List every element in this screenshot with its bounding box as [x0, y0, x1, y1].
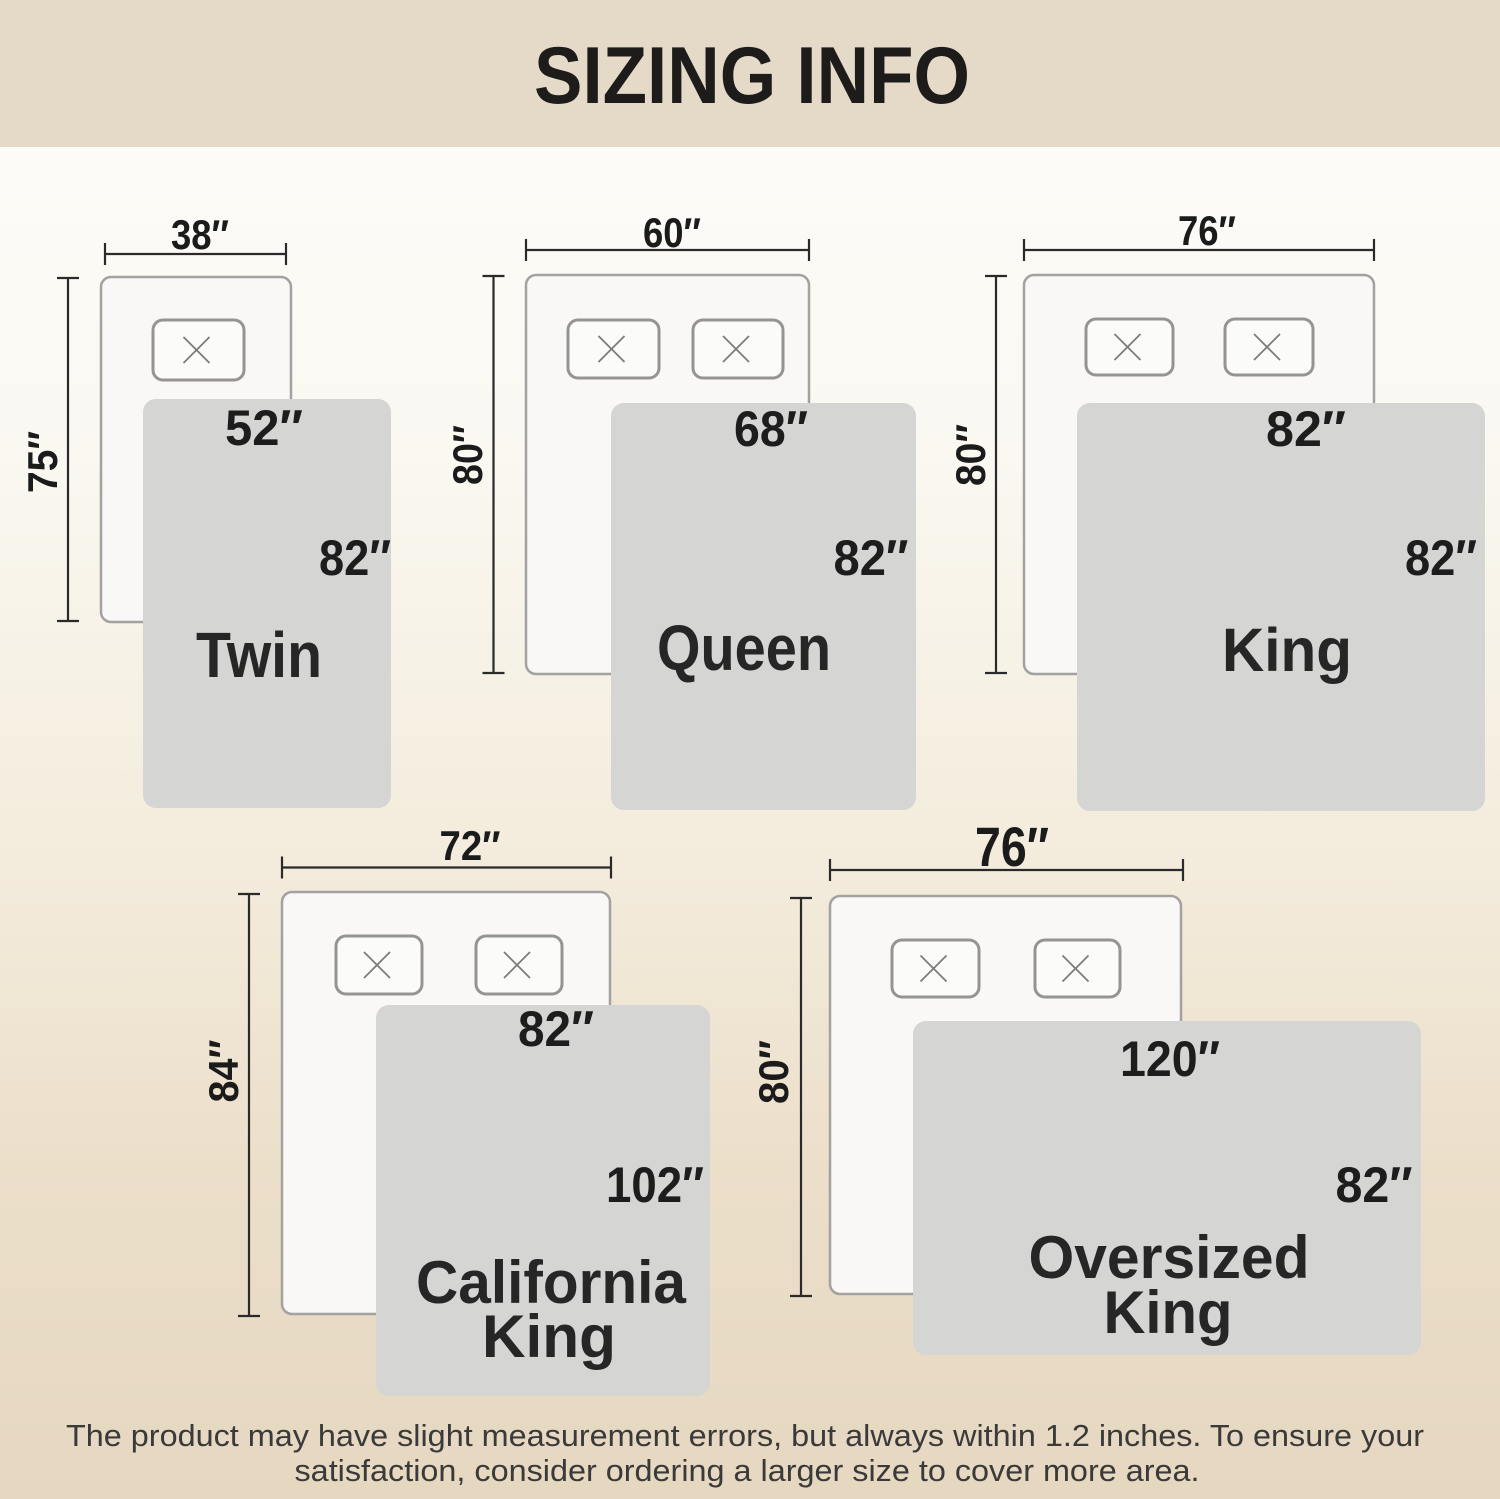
svg-text:76″: 76″: [1178, 207, 1236, 254]
svg-text:76″: 76″: [975, 815, 1049, 878]
svg-text:75″: 75″: [19, 431, 66, 493]
svg-text:120″: 120″: [1120, 1031, 1220, 1087]
svg-text:satisfaction, consider orderin: satisfaction, consider ordering a larger…: [295, 1453, 1200, 1488]
svg-text:102″: 102″: [606, 1157, 704, 1213]
svg-text:The product may have slight me: The product may have slight measurement …: [66, 1418, 1424, 1453]
svg-text:80″: 80″: [750, 1040, 797, 1104]
svg-text:King: King: [482, 1303, 616, 1370]
svg-text:72″: 72″: [440, 822, 501, 869]
svg-text:38″: 38″: [171, 211, 229, 258]
svg-text:82″: 82″: [1405, 530, 1477, 586]
svg-text:King: King: [1104, 1279, 1233, 1346]
svg-text:80″: 80″: [444, 425, 491, 485]
svg-text:Queen: Queen: [657, 612, 831, 684]
svg-text:82″: 82″: [1336, 1157, 1413, 1213]
svg-text:60″: 60″: [643, 209, 701, 256]
svg-text:SIZING INFO: SIZING INFO: [534, 31, 970, 121]
svg-text:52″: 52″: [225, 400, 303, 456]
svg-text:80″: 80″: [947, 424, 994, 486]
svg-text:82″: 82″: [518, 1001, 594, 1057]
svg-text:82″: 82″: [319, 530, 391, 586]
svg-text:68″: 68″: [734, 401, 808, 457]
svg-text:84″: 84″: [200, 1040, 247, 1103]
svg-text:King: King: [1222, 616, 1352, 684]
svg-text:Twin: Twin: [196, 619, 322, 691]
svg-text:82″: 82″: [834, 530, 909, 586]
svg-text:82″: 82″: [1266, 401, 1346, 457]
